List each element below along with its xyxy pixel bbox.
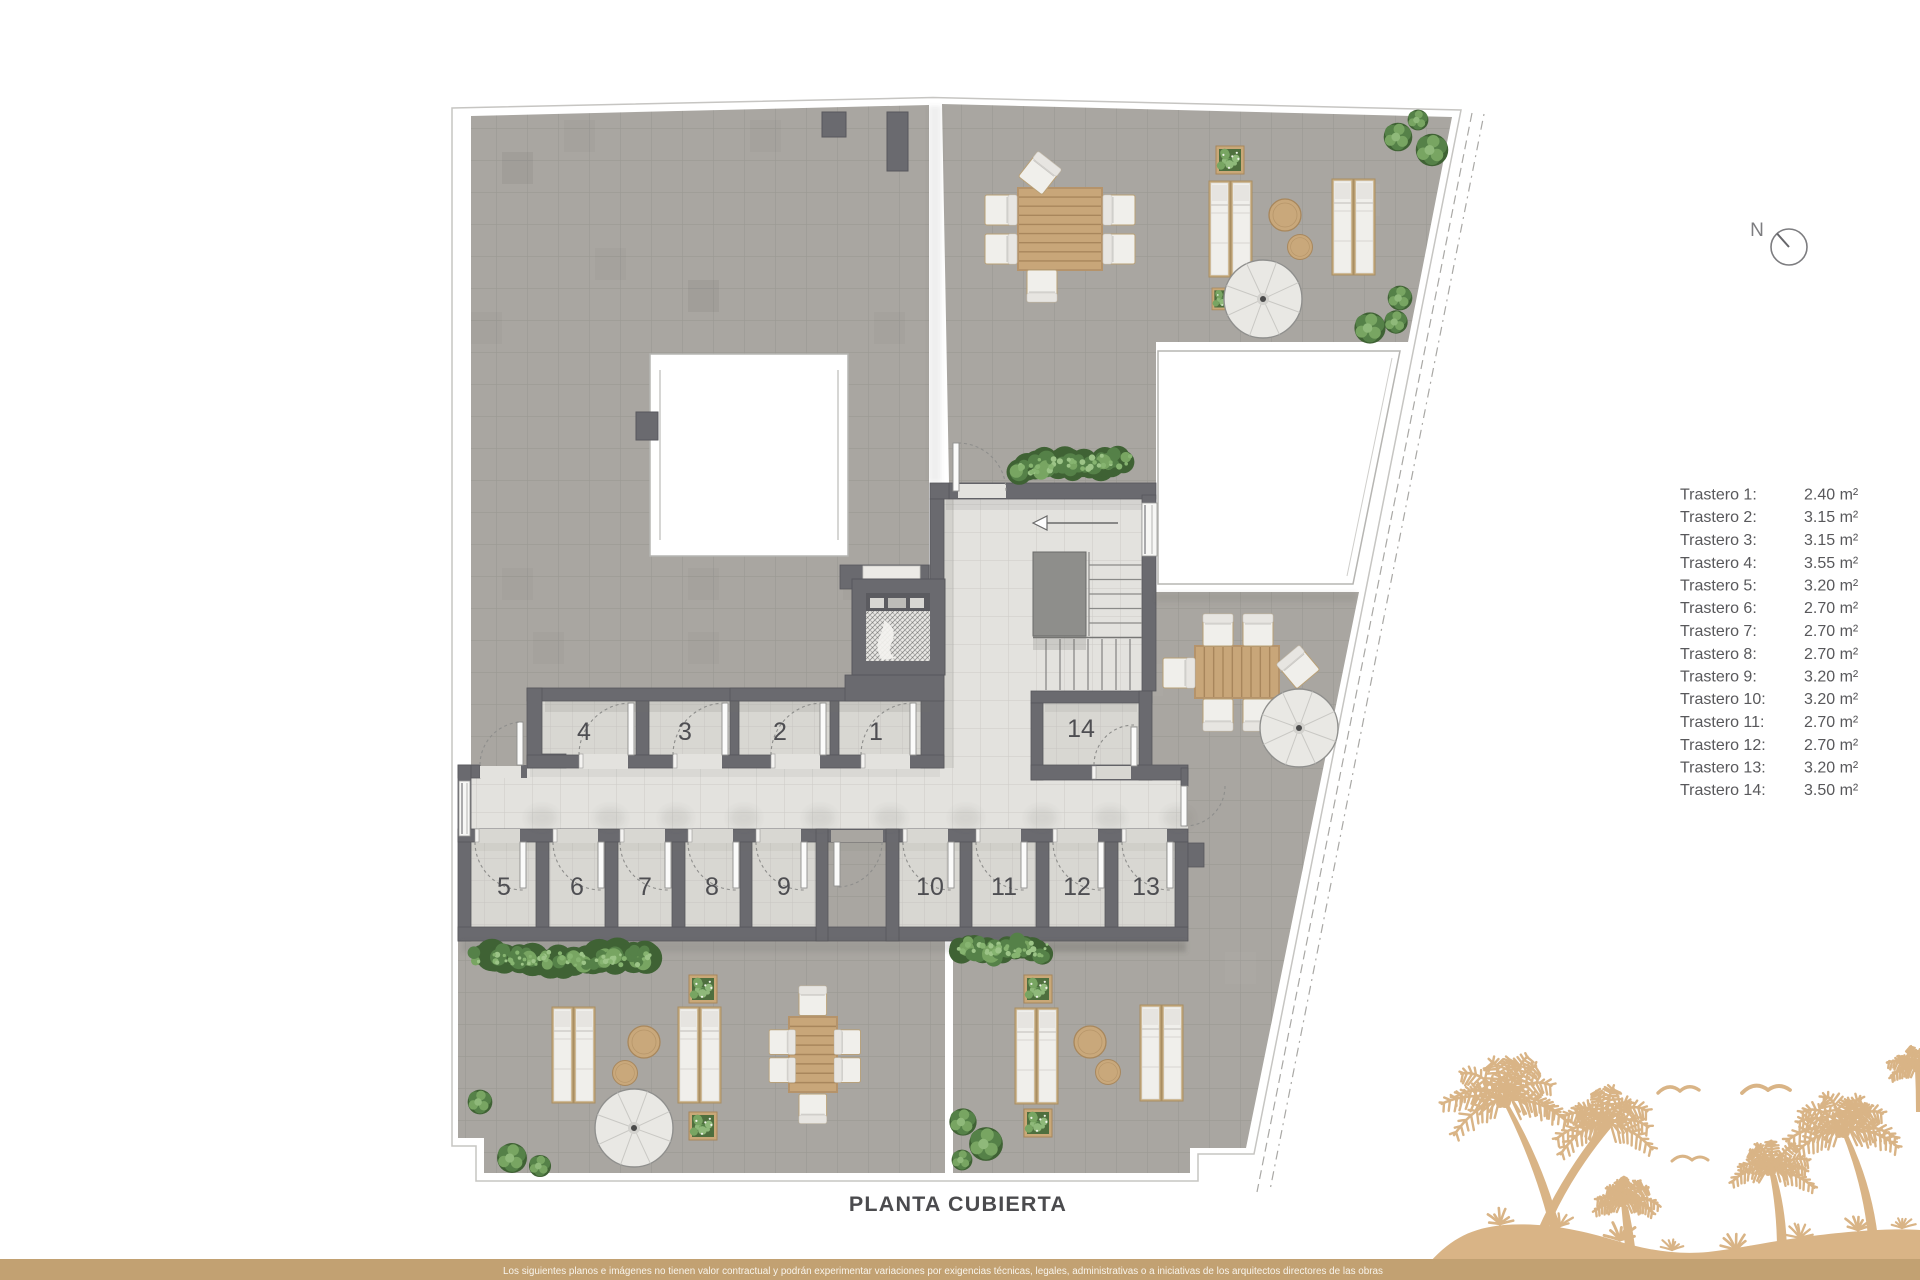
- svg-text:11: 11: [991, 873, 1017, 901]
- svg-text:Trastero 3:: Trastero 3:: [1680, 532, 1757, 549]
- svg-text:Trastero 10:: Trastero 10:: [1680, 691, 1766, 708]
- svg-text:2.70 m²: 2.70 m²: [1804, 623, 1859, 640]
- svg-text:Trastero 11:: Trastero 11:: [1680, 714, 1764, 731]
- svg-text:12: 12: [1063, 873, 1091, 901]
- svg-text:13: 13: [1132, 873, 1160, 901]
- svg-text:3.20 m²: 3.20 m²: [1804, 760, 1859, 777]
- svg-text:2.70 m²: 2.70 m²: [1804, 737, 1859, 754]
- svg-text:Trastero 7:: Trastero 7:: [1680, 623, 1757, 640]
- svg-text:3.20 m²: 3.20 m²: [1804, 669, 1859, 686]
- svg-text:3.50 m²: 3.50 m²: [1804, 782, 1859, 799]
- svg-text:1: 1: [869, 718, 883, 746]
- svg-text:Los siguientes planos e imágen: Los siguientes planos e imágenes no tien…: [503, 1266, 1383, 1277]
- svg-text:Trastero 4:: Trastero 4:: [1680, 555, 1757, 572]
- svg-text:3.55 m²: 3.55 m²: [1804, 555, 1859, 572]
- svg-text:10: 10: [916, 873, 944, 901]
- svg-text:3: 3: [678, 718, 692, 746]
- svg-text:8: 8: [705, 873, 719, 901]
- svg-text:3.20 m²: 3.20 m²: [1804, 578, 1859, 595]
- svg-text:Trastero 9:: Trastero 9:: [1680, 669, 1757, 686]
- svg-text:4: 4: [577, 718, 591, 746]
- svg-text:6: 6: [570, 873, 584, 901]
- svg-text:2.70 m²: 2.70 m²: [1804, 714, 1859, 731]
- svg-text:2: 2: [773, 718, 787, 746]
- svg-text:Trastero 6:: Trastero 6:: [1680, 600, 1757, 617]
- svg-text:N: N: [1750, 220, 1764, 241]
- svg-text:Trastero 5:: Trastero 5:: [1680, 578, 1757, 595]
- svg-text:14: 14: [1067, 715, 1095, 743]
- svg-text:Trastero 1:: Trastero 1:: [1680, 487, 1757, 504]
- svg-text:Trastero 14:: Trastero 14:: [1680, 782, 1766, 799]
- svg-text:3.15 m²: 3.15 m²: [1804, 532, 1859, 549]
- svg-text:9: 9: [777, 873, 791, 901]
- svg-text:3.15 m²: 3.15 m²: [1804, 509, 1859, 526]
- svg-text:3.20 m²: 3.20 m²: [1804, 691, 1859, 708]
- svg-text:Trastero 2:: Trastero 2:: [1680, 509, 1757, 526]
- svg-text:2.40 m²: 2.40 m²: [1804, 487, 1859, 504]
- svg-text:PLANTA CUBIERTA: PLANTA CUBIERTA: [849, 1192, 1067, 1216]
- svg-text:7: 7: [638, 873, 652, 901]
- svg-text:Trastero 13:: Trastero 13:: [1680, 760, 1766, 777]
- svg-text:5: 5: [497, 873, 511, 901]
- svg-text:2.70 m²: 2.70 m²: [1804, 646, 1859, 663]
- svg-text:Trastero 8:: Trastero 8:: [1680, 646, 1757, 663]
- svg-text:2.70 m²: 2.70 m²: [1804, 600, 1859, 617]
- svg-text:Trastero 12:: Trastero 12:: [1680, 737, 1766, 754]
